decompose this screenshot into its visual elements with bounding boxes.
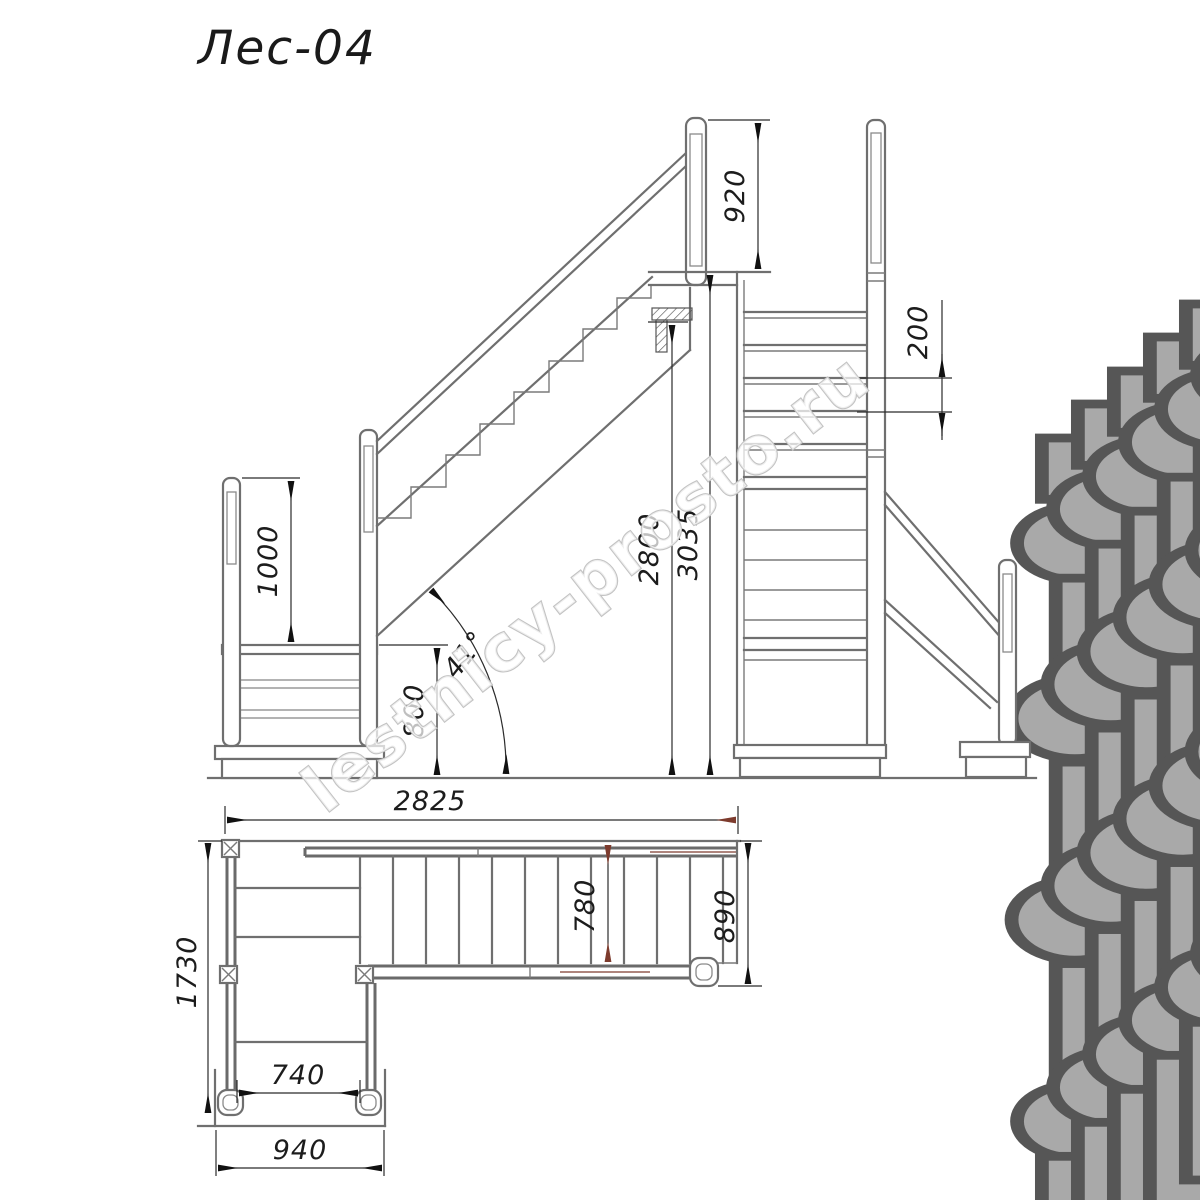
platform-top-board	[222, 645, 377, 654]
side-elevation-view	[215, 118, 1200, 1200]
dimension-920: 920	[708, 120, 770, 269]
middle-newel-panel	[364, 446, 373, 532]
lower-handrail-top	[885, 492, 1002, 626]
side-balusters	[1012, 203, 1200, 1200]
dim-riser-height-label: 200	[903, 305, 934, 360]
plan-post-topleft	[222, 840, 239, 857]
dim-overall-depth-label: 1730	[172, 936, 203, 1009]
dimension-780: 780	[570, 845, 608, 962]
dim-entry-clear-width-label: 740	[271, 1060, 326, 1091]
platform-slat	[240, 680, 360, 688]
dimension-2825: 2825	[225, 786, 738, 834]
plan-bottom-handrail	[368, 958, 737, 986]
front-base-block-right	[966, 757, 1026, 777]
plan-entry-post-left-inner	[223, 1095, 238, 1110]
plan-entry-post-right-inner	[361, 1095, 376, 1110]
winder-treads	[235, 888, 360, 937]
dimension-940: 940	[216, 1130, 384, 1176]
front-base-plinth-right	[960, 742, 1030, 757]
front-base-plinth	[734, 745, 886, 758]
entry-newel-panel	[227, 492, 236, 564]
dim-entry-overall-width-label: 940	[273, 1135, 328, 1166]
drawing-sheet: Лес-04	[0, 0, 1200, 1200]
drawing-title: Лес-04	[196, 21, 377, 76]
plan-end-post-inner	[696, 964, 712, 980]
handrail-bottom-edge	[377, 166, 686, 454]
dim-post-rail-height-label: 920	[720, 169, 751, 224]
plan-post-midleft	[220, 966, 237, 983]
top-landing-post-panel	[690, 134, 702, 266]
dim-flight-clear-width-label: 780	[570, 879, 601, 934]
plan-top-handrail	[305, 848, 737, 856]
dim-flight-overall-width-label: 890	[710, 889, 741, 944]
dim-overall-length-label: 2825	[394, 786, 467, 817]
front-base-block	[740, 758, 880, 777]
platform-slat	[240, 710, 360, 718]
staircase-drawing: Лес-04	[0, 0, 1200, 1200]
handrail-top-edge	[377, 153, 686, 441]
dimension-1000: 1000	[242, 478, 300, 642]
dimension-740: 740	[237, 1060, 360, 1103]
central-post-panel	[871, 133, 881, 263]
bottom-newel-panel	[1003, 574, 1012, 652]
flight-treads	[360, 841, 737, 963]
dim-entry-post-height-label: 1000	[253, 525, 284, 598]
plan-post-midcenter	[356, 966, 373, 983]
